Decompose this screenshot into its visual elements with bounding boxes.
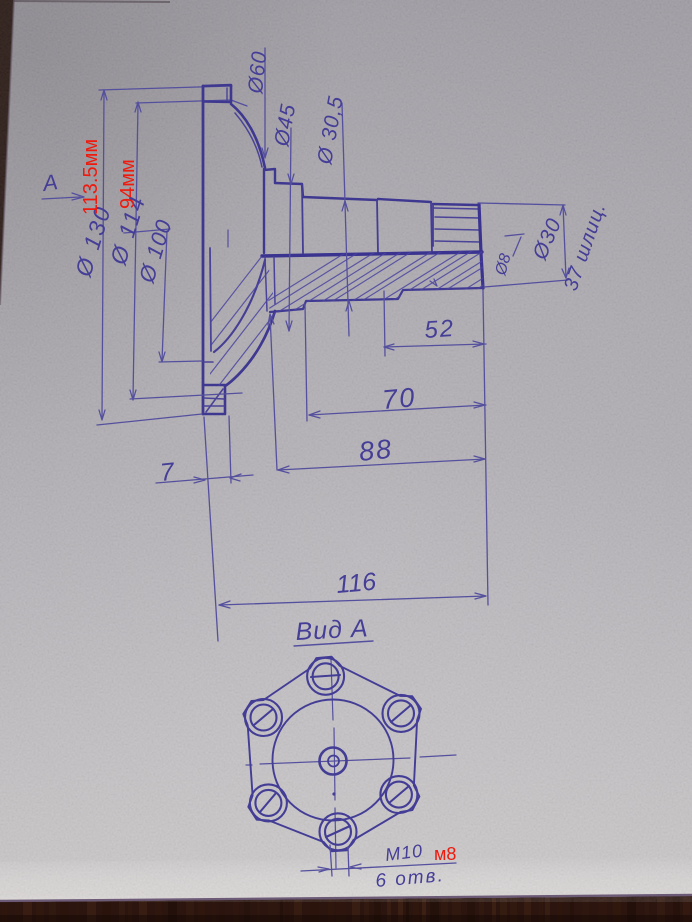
svg-text:94мм: 94мм	[117, 159, 139, 209]
svg-text:м8: м8	[434, 844, 456, 864]
svg-text:Ø60: Ø60	[244, 50, 271, 96]
svg-text:116: 116	[335, 568, 377, 599]
svg-text:88: 88	[357, 434, 394, 467]
svg-text:113.5мм: 113.5мм	[80, 139, 102, 215]
svg-text:70: 70	[381, 382, 418, 415]
svg-text:52: 52	[424, 315, 457, 344]
svg-text:Вид А: Вид А	[295, 614, 369, 646]
